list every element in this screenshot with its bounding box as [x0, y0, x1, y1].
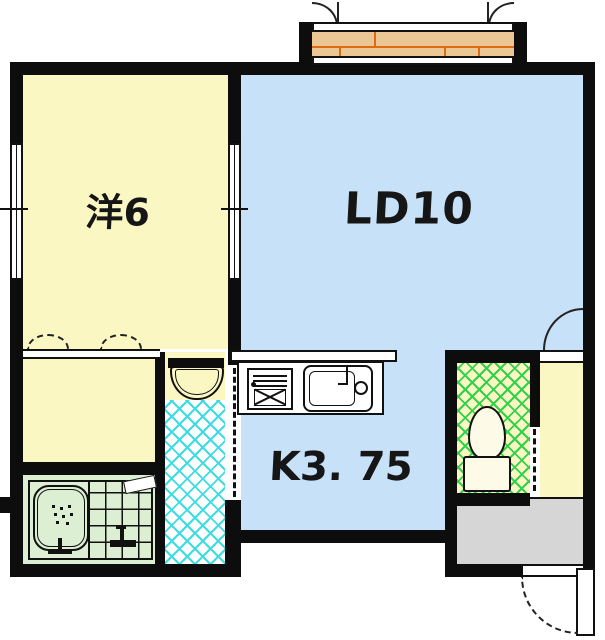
window-center-line [16, 145, 17, 278]
outer-wall-right [583, 62, 595, 577]
toilet-block-left-wall [445, 350, 457, 577]
wall-under-toilet-room [445, 493, 530, 506]
entrance-bottom-wall [445, 564, 523, 577]
balcony-plank-joint [478, 46, 480, 56]
shower-fixture-base [110, 540, 136, 547]
outer-wall-bottom-left [10, 564, 241, 577]
kitchen-bottom-wall [228, 530, 457, 543]
stove-knob-dot [251, 382, 256, 387]
genkan-step-line [530, 497, 583, 499]
sink-basin [309, 371, 355, 406]
balcony-railing [312, 22, 514, 32]
window-left-wall [10, 143, 23, 280]
window-tick-left [0, 208, 28, 210]
washroom-wall-stub [225, 500, 241, 564]
closet-door-track [23, 349, 160, 359]
balcony-sill [312, 56, 514, 65]
washbasin-faucet [190, 359, 202, 367]
sink-faucet-circle [354, 381, 368, 395]
entrance-door-leaf [576, 568, 595, 636]
washroom-door-dashed-line [233, 368, 236, 497]
entrance-door-arc [521, 577, 578, 634]
floorplan-canvas: 洋6 LD10 K3. 75 [0, 0, 605, 640]
closet-floor [23, 359, 155, 462]
sink-icon [303, 365, 373, 412]
hallway-floor [540, 363, 583, 498]
balcony-deck [312, 32, 514, 56]
toilet-block-top-wall [445, 350, 540, 363]
living-dining-label: LD10 [343, 184, 475, 235]
shower-fixture-stem [120, 529, 124, 541]
balcony-plank-joint [339, 46, 341, 56]
stove-x-box [254, 389, 286, 406]
closet-washroom-divider [155, 352, 165, 564]
balcony-plank-joint [374, 32, 376, 46]
genkan-floor [457, 498, 583, 564]
toilet-door-dashed-line [533, 429, 536, 491]
outer-wall-left [10, 62, 23, 577]
bathtub-faucet-base [48, 549, 72, 554]
closet-bottom-wall [10, 462, 165, 475]
toilet-icon-tank [463, 456, 511, 492]
bathtub-texture-dots [52, 505, 55, 508]
window-tick-partition [221, 208, 248, 210]
stove-grill-line [253, 380, 287, 382]
sink-faucet-spout [338, 383, 348, 385]
balcony-plank-joint [312, 46, 514, 48]
western-room-label: 洋6 [84, 182, 151, 237]
toilet-hall-divider-solid [530, 363, 540, 427]
washroom-floor [165, 400, 225, 564]
hall-door-opening [540, 350, 583, 363]
kitchen-label: K3. 75 [268, 444, 414, 490]
pipe-stub-left [0, 497, 10, 513]
stove-grill-line [253, 385, 287, 387]
balcony-wall-stub-right [514, 22, 527, 62]
entrance-threshold [523, 564, 583, 577]
stove-grill-line [253, 375, 287, 377]
shower-fixture-head [116, 525, 126, 529]
stove-icon [247, 368, 293, 410]
window-center-line [234, 145, 235, 278]
balcony-wall-stub-left [299, 22, 312, 62]
toilet-icon-bowl [468, 406, 506, 460]
window-partition-wall [228, 143, 241, 280]
balcony-plank-joint [444, 46, 446, 56]
